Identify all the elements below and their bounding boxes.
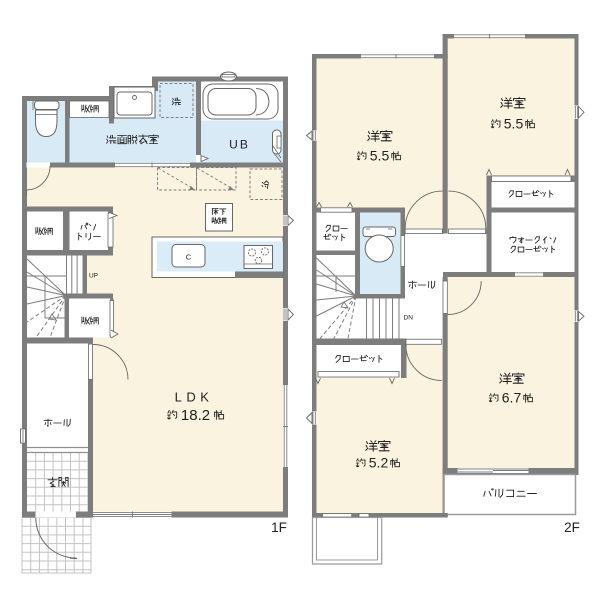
svg-text:1F: 1F [271, 520, 287, 535]
svg-text:18.2: 18.2 [181, 407, 210, 424]
svg-text:UP: UP [89, 273, 98, 280]
svg-text:5.2: 5.2 [369, 455, 389, 471]
svg-text:C: C [186, 253, 192, 262]
svg-text:UB: UB [229, 138, 250, 152]
svg-text:6.7: 6.7 [502, 390, 522, 406]
svg-text:DN: DN [404, 315, 414, 322]
svg-text:5.5: 5.5 [370, 148, 390, 164]
svg-text:2F: 2F [564, 520, 580, 535]
svg-text:5.5: 5.5 [504, 116, 524, 132]
svg-text:LDK: LDK [175, 390, 214, 405]
